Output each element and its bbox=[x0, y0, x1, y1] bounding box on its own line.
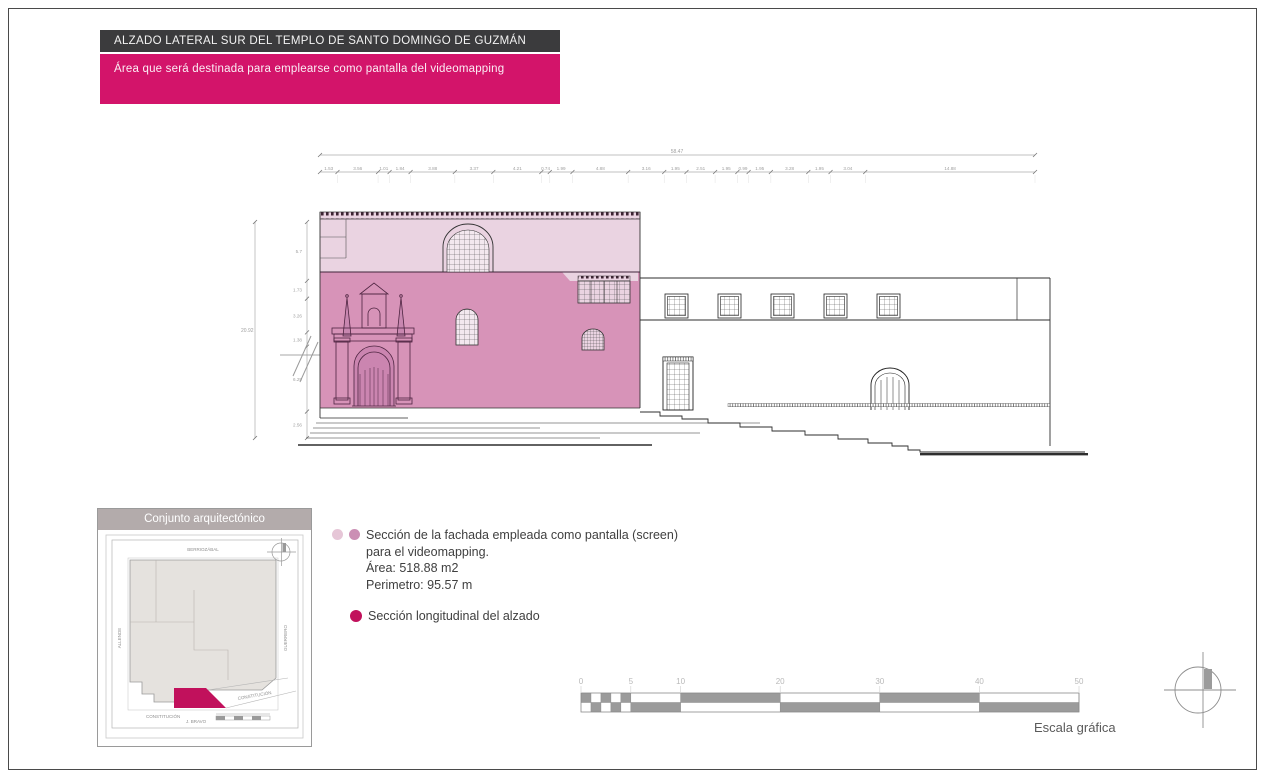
legend-line1: Sección de la fachada empleada como pant… bbox=[366, 527, 678, 544]
street-label-right: GUERRERO bbox=[283, 625, 288, 652]
svg-text:10: 10 bbox=[676, 677, 685, 686]
overall-height-label: 20.92 bbox=[241, 328, 254, 334]
svg-text:1.53: 1.53 bbox=[324, 166, 333, 171]
street-label-bottom-center: J. BRAVO bbox=[186, 719, 207, 724]
site-plan-title: Conjunto arquitectónico bbox=[98, 509, 311, 530]
top-dimension-lines: 58.47 1.533.561.011.843.883.374.210.741.… bbox=[318, 149, 1037, 183]
svg-text:3.37: 3.37 bbox=[470, 166, 479, 171]
stairs-and-ground bbox=[298, 412, 1088, 454]
legend-item-section: Sección longitudinal del alzado bbox=[350, 608, 682, 625]
svg-text:1.84: 1.84 bbox=[396, 166, 405, 171]
svg-text:0.99: 0.99 bbox=[739, 166, 748, 171]
legend-dot-magenta-icon bbox=[350, 610, 362, 622]
svg-text:0: 0 bbox=[579, 677, 584, 686]
svg-text:1.38: 1.38 bbox=[293, 337, 302, 342]
legend-dot-mid-icon bbox=[349, 529, 360, 540]
street-label-top: BERRIOZÁBAL bbox=[187, 546, 219, 552]
overall-width-label: 58.47 bbox=[671, 149, 684, 155]
compass-icon bbox=[1156, 646, 1244, 734]
street-label-left: ALLENDE bbox=[117, 628, 122, 649]
svg-text:3.16: 3.16 bbox=[642, 166, 651, 171]
svg-text:1.01: 1.01 bbox=[379, 166, 388, 171]
left-dimension-lines: 20.92 5.71.733.261.386.292.56 bbox=[241, 220, 309, 440]
svg-text:2.51: 2.51 bbox=[696, 166, 705, 171]
legend-section-label: Sección longitudinal del alzado bbox=[368, 608, 540, 625]
grilled-window bbox=[582, 329, 604, 350]
elevation-drawing: 58.47 1.533.561.011.843.883.374.210.741.… bbox=[240, 140, 1090, 475]
svg-text:20: 20 bbox=[776, 677, 785, 686]
svg-text:1.99: 1.99 bbox=[557, 166, 566, 171]
legend-line2: para el videomapping. bbox=[366, 544, 678, 561]
tall-doorway bbox=[663, 357, 693, 410]
svg-text:5: 5 bbox=[629, 677, 634, 686]
svg-text:1.73: 1.73 bbox=[293, 288, 302, 293]
nave-window bbox=[456, 309, 478, 345]
site-plan-drawing: BERRIOZÁBAL ALLENDE GUERRERO CONSTITUCIÓ… bbox=[98, 530, 311, 746]
svg-text:4.21: 4.21 bbox=[513, 166, 522, 171]
subtitle-bar: Área que será destinada para emplearse c… bbox=[100, 54, 560, 104]
svg-text:4.88: 4.88 bbox=[596, 166, 605, 171]
svg-text:0.74: 0.74 bbox=[541, 166, 550, 171]
svg-text:3.56: 3.56 bbox=[353, 166, 362, 171]
legend-perimeter: Perimetro: 95.57 m bbox=[366, 577, 678, 594]
legend-area: Área: 518.88 m2 bbox=[366, 560, 678, 577]
section-cut-mark bbox=[280, 336, 320, 382]
balcony-window bbox=[578, 276, 630, 303]
title-bar: ALZADO LATERAL SUR DEL TEMPLO DE SANTO D… bbox=[100, 30, 560, 52]
svg-text:1.95: 1.95 bbox=[671, 166, 680, 171]
svg-text:40: 40 bbox=[975, 677, 984, 686]
legend-item-screen-text: Sección de la fachada empleada como pant… bbox=[366, 527, 678, 593]
svg-text:14.88: 14.88 bbox=[944, 166, 956, 171]
svg-text:3.28: 3.28 bbox=[785, 166, 794, 171]
svg-text:1.95: 1.95 bbox=[755, 166, 764, 171]
square-window bbox=[665, 294, 688, 318]
square-window bbox=[877, 294, 900, 318]
svg-text:5.7: 5.7 bbox=[296, 249, 303, 254]
graphic-scale-bar: 051020304050 bbox=[568, 664, 1128, 724]
square-window bbox=[771, 294, 794, 318]
svg-text:3.04: 3.04 bbox=[843, 166, 852, 171]
graphic-scale-label: Escala gráfica bbox=[1034, 720, 1116, 735]
upper-window-row bbox=[665, 294, 900, 318]
legend-dot-light-icon bbox=[332, 529, 343, 540]
sheet: ALZADO LATERAL SUR DEL TEMPLO DE SANTO D… bbox=[0, 0, 1267, 778]
site-plan-box: Conjunto arquitectónico BERRIOZÁBAL ALLE… bbox=[97, 508, 312, 747]
svg-text:1.95: 1.95 bbox=[722, 166, 731, 171]
street-label-bottom-left: CONSTITUCIÓN bbox=[146, 713, 180, 719]
svg-text:50: 50 bbox=[1075, 677, 1084, 686]
svg-text:1.95: 1.95 bbox=[815, 166, 824, 171]
ground-hatched-band bbox=[728, 404, 1050, 407]
building-block bbox=[130, 560, 276, 702]
legend: Sección de la fachada empleada como pant… bbox=[332, 527, 682, 625]
legend-item-screen: Sección de la fachada empleada como pant… bbox=[332, 527, 682, 593]
svg-text:30: 30 bbox=[875, 677, 884, 686]
svg-text:3.26: 3.26 bbox=[293, 313, 302, 318]
square-window bbox=[824, 294, 847, 318]
square-window bbox=[718, 294, 741, 318]
svg-text:2.56: 2.56 bbox=[293, 423, 302, 428]
svg-text:3.88: 3.88 bbox=[428, 166, 437, 171]
